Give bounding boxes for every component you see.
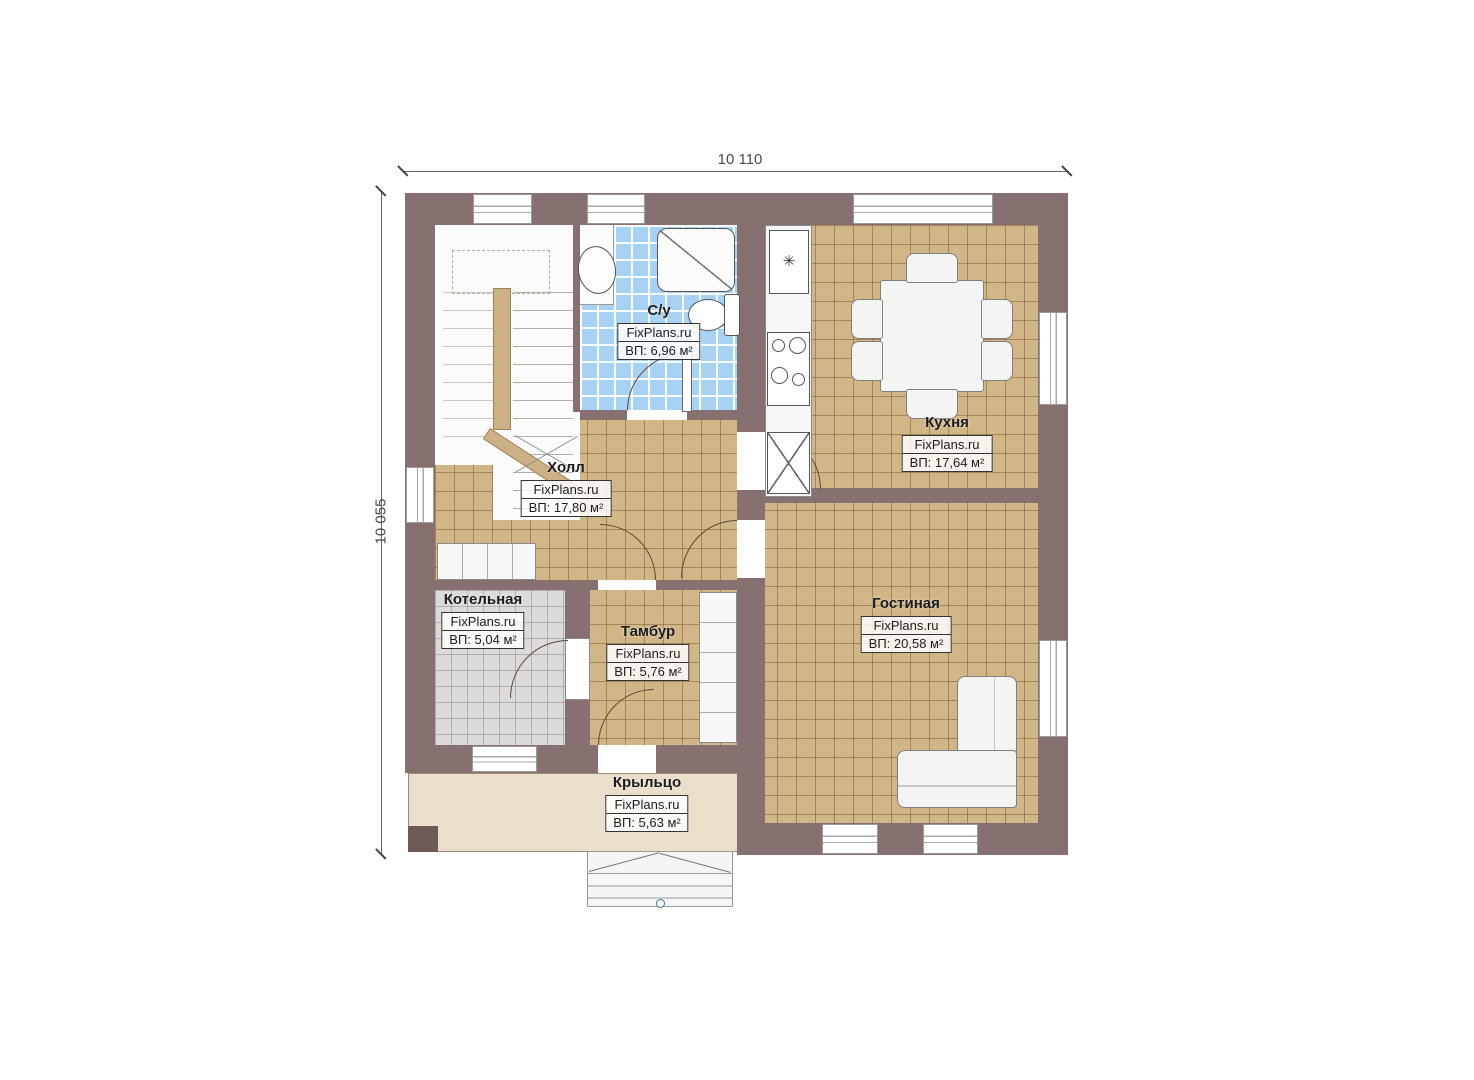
- door-opening-boiler: [565, 638, 590, 700]
- room-name: Кухня: [902, 414, 993, 431]
- window: [1039, 312, 1067, 405]
- window: [406, 467, 434, 523]
- room-label-su: С/у FixPlans.ru ВП: 6,96 м²: [617, 302, 700, 360]
- chair: [851, 341, 883, 381]
- room-name: Холл: [521, 459, 612, 476]
- room-area: ВП: 20,58 м²: [862, 634, 951, 652]
- room-name: Котельная: [441, 591, 524, 608]
- kitchen-sink-cabinet: [767, 432, 810, 494]
- stove: [767, 332, 810, 406]
- room-area: ВП: 5,04 м²: [442, 630, 523, 648]
- room-info-box: FixPlans.ru ВП: 17,64 м²: [902, 435, 993, 472]
- room-info-box: FixPlans.ru ВП: 17,80 м²: [521, 480, 612, 517]
- room-area: ВП: 6,96 м²: [618, 341, 699, 359]
- porch-pillar: [408, 826, 438, 852]
- window: [1039, 640, 1067, 737]
- wall-bottom-left: [405, 745, 765, 773]
- room-area: ВП: 5,63 м²: [606, 813, 687, 831]
- steps-marker-dot: [656, 899, 665, 908]
- room-area: ВП: 17,80 м²: [522, 498, 611, 516]
- window: [587, 194, 645, 224]
- room-name: Крыльцо: [605, 774, 688, 791]
- room-name: Тамбур: [606, 623, 689, 640]
- wall-hall-bottom: [435, 580, 737, 590]
- stair-upper-flight-treads: [443, 292, 493, 440]
- window: [853, 194, 993, 224]
- door-opening-kitchen: [737, 432, 765, 490]
- wall-right: [1038, 193, 1068, 855]
- dining-table: [880, 280, 984, 392]
- room-name: С/у: [617, 302, 700, 319]
- room-info-box: FixPlans.ru ВП: 20,58 м²: [861, 616, 952, 653]
- room-label-hall: Холл FixPlans.ru ВП: 17,80 м²: [521, 459, 612, 517]
- door-opening-tambour-hall: [598, 580, 656, 590]
- room-area: ВП: 5,76 м²: [607, 662, 688, 680]
- window: [923, 824, 978, 854]
- room-label-tambour: Тамбур FixPlans.ru ВП: 5,76 м²: [606, 623, 689, 681]
- room-label-boiler: Котельная FixPlans.ru ВП: 5,04 м²: [441, 591, 524, 649]
- fridge: ✳: [769, 230, 809, 294]
- room-brand: FixPlans.ru: [862, 617, 951, 634]
- room-label-kitchen: Кухня FixPlans.ru ВП: 17,64 м²: [902, 414, 993, 472]
- wall-stair-bathroom: [573, 225, 580, 412]
- floor-plan-page: { "dimensions": { "width_label": "10 110…: [0, 0, 1474, 1080]
- room-info-box: FixPlans.ru ВП: 5,63 м²: [605, 795, 688, 832]
- stair-stringer: [493, 288, 511, 430]
- room-brand: FixPlans.ru: [903, 436, 992, 453]
- window: [472, 746, 537, 772]
- room-brand: FixPlans.ru: [522, 481, 611, 498]
- room-brand: FixPlans.ru: [607, 645, 688, 662]
- tambour-closet: [699, 592, 737, 743]
- window: [473, 194, 532, 224]
- room-name: Гостиная: [861, 595, 952, 612]
- corner-sofa-horizontal: [897, 750, 1017, 808]
- dimension-line-top: [403, 171, 1069, 172]
- chair: [981, 299, 1013, 339]
- room-info-box: FixPlans.ru ВП: 5,04 м²: [441, 612, 524, 649]
- dimension-width-label: 10 110: [690, 151, 790, 168]
- room-brand: FixPlans.ru: [606, 796, 687, 813]
- room-brand: FixPlans.ru: [442, 613, 523, 630]
- room-info-box: FixPlans.ru ВП: 6,96 м²: [617, 323, 700, 360]
- door-opening-entrance: [598, 745, 656, 773]
- stove-burner-icon: [772, 339, 785, 352]
- window: [822, 824, 878, 854]
- dimension-height-label: 10 055: [373, 472, 390, 572]
- stove-burner-icon: [792, 373, 805, 386]
- stove-burner-icon: [789, 337, 806, 354]
- chair: [906, 253, 958, 283]
- chair: [851, 299, 883, 339]
- chair: [981, 341, 1013, 381]
- room-area: ВП: 17,64 м²: [903, 453, 992, 471]
- shower-cabin: [657, 228, 735, 292]
- room-info-box: FixPlans.ru ВП: 5,76 м²: [606, 644, 689, 681]
- room-label-living: Гостиная FixPlans.ru ВП: 20,58 м²: [861, 595, 952, 653]
- toilet-tank: [724, 294, 740, 336]
- wall-bottom-right: [737, 823, 1068, 855]
- stove-burner-icon: [771, 367, 788, 384]
- room-label-porch: Крыльцо FixPlans.ru ВП: 5,63 м²: [605, 774, 688, 832]
- fridge-snowflake-icon: ✳: [783, 253, 796, 270]
- porch-floor: [408, 773, 739, 852]
- hall-wardrobe: [437, 543, 536, 580]
- door-opening-bathroom: [627, 410, 687, 420]
- room-brand: FixPlans.ru: [618, 324, 699, 341]
- door-opening-living: [737, 520, 765, 578]
